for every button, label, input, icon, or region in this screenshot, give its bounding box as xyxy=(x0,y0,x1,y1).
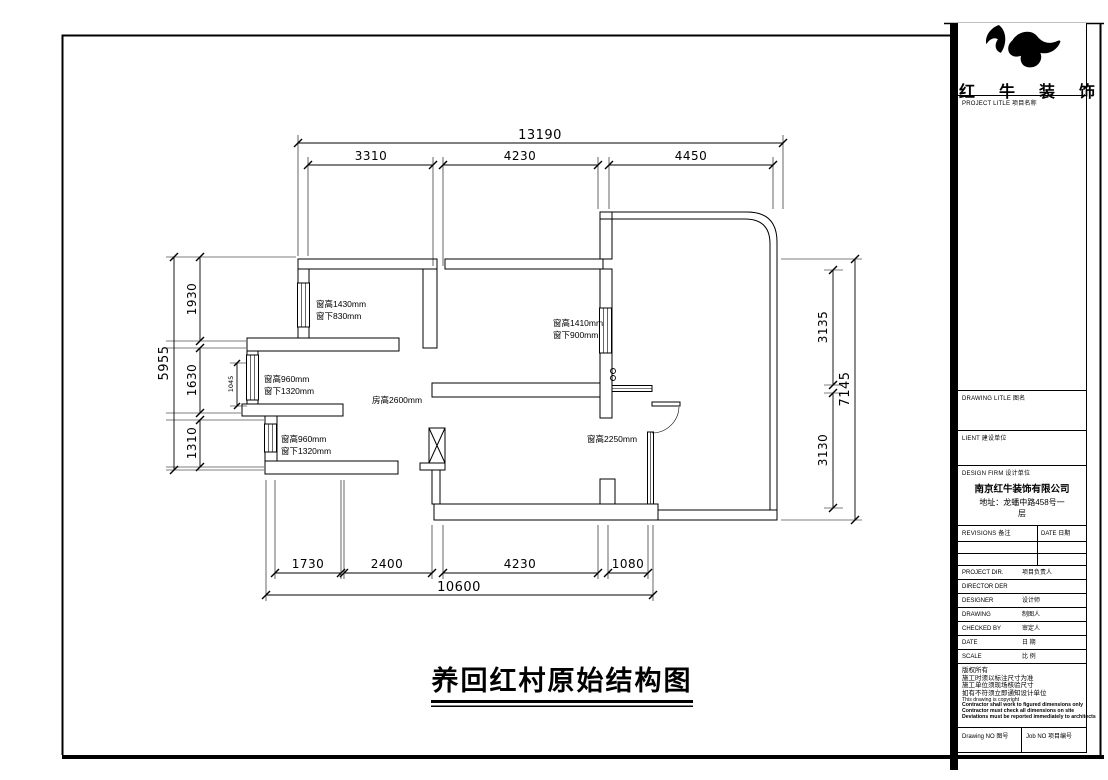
logo-section: 红牛装饰 xyxy=(958,23,1086,95)
row-date: DATE 日 期 xyxy=(958,636,1086,650)
project-title-header: PROJECT LITLE 项目名称 xyxy=(958,96,1086,107)
drawing-title-header: DRAWING LITLE 图名 xyxy=(958,391,1086,402)
annotation-window-topleft: 窗下830mm xyxy=(316,311,361,321)
row-value: 审定人 xyxy=(1022,622,1040,636)
row-value: 比 例 xyxy=(1022,650,1036,664)
job-no-label: Job NO 项目编号 xyxy=(1022,728,1086,740)
column-symbol xyxy=(429,428,445,463)
row-value: 日 期 xyxy=(1022,636,1036,650)
bull-logo-icon xyxy=(982,25,1062,75)
title-underline-thin xyxy=(431,706,693,708)
job-no-cell: Job NO 项目编号 xyxy=(1022,728,1086,752)
dim-left-inner: 1045 xyxy=(227,376,235,393)
revisions-section: REVISIONS 备注 DATE 日期 xyxy=(958,525,1086,565)
annotation-window-right: 窗下900mm xyxy=(553,330,598,340)
title-block: 红牛装饰 PROJECT LITLE 项目名称 DRAWING LITLE 图名… xyxy=(958,23,1087,753)
revisions-column-divider xyxy=(1037,526,1038,565)
row-value: 制图人 xyxy=(1022,608,1040,622)
design-firm-header: DESIGN FIRM 设计单位 xyxy=(958,466,1086,477)
note-line: 如有不符须立即通知设计单位 xyxy=(962,690,1086,698)
dimension-lines xyxy=(174,143,855,595)
row-project-dir: PROJECT DIR. 项目负责人 xyxy=(958,566,1086,580)
row-designer: DESIGNER 设计师 xyxy=(958,594,1086,608)
row-label: DRAWING xyxy=(962,608,991,622)
row-label: DATE xyxy=(962,636,978,650)
dim-left-total: 5955 xyxy=(157,345,172,380)
drawing-title-section: DRAWING LITLE 图名 xyxy=(958,390,1086,430)
plan-annotations: 窗高1430mm 窗下830mm 窗高1410mm 窗下900mm 窗高960m… xyxy=(264,299,637,456)
dim-top-seg2: 4230 xyxy=(504,149,537,163)
annotation-window-topleft: 窗高1430mm xyxy=(316,299,366,309)
note-disclaimer: Deviations must be reported immediately … xyxy=(962,715,1086,721)
firm-name: 南京红牛装饰有限公司 xyxy=(958,481,1086,495)
window-corridor xyxy=(612,386,652,392)
row-label: DIRECTOR DER xyxy=(962,580,1008,594)
dim-bottom-seg2: 2400 xyxy=(371,557,404,571)
annotation-window-balcony: 窗高2250mm xyxy=(587,434,637,444)
annotation-window-right: 窗高1410mm xyxy=(553,318,603,328)
dim-top-total: 13190 xyxy=(518,128,562,143)
numbers-section: Drawing NO 图号 Job NO 项目编号 xyxy=(958,727,1086,753)
dim-top-seg3: 4450 xyxy=(675,149,708,163)
window-bay-upper xyxy=(247,355,259,400)
row-label: SCALE xyxy=(962,650,982,664)
dim-right-seg2: 3130 xyxy=(816,434,830,467)
row-label: DESIGNER xyxy=(962,594,993,608)
drawing-title-group: 养回红村原始结构图 xyxy=(431,665,693,707)
personnel-rows: PROJECT DIR. 项目负责人 DIRECTOR DER DESIGNER… xyxy=(958,565,1086,663)
dim-left-seg1: 1930 xyxy=(185,283,199,316)
window-central xyxy=(600,308,612,353)
door-symbol xyxy=(611,369,681,434)
title-underline-thick xyxy=(431,700,693,703)
notes-section: 版权所有 施工时须以标注尺寸为准 施工单位须现场核验尺寸 如有不符须立即通知设计… xyxy=(958,663,1086,727)
dim-top-seg1: 3310 xyxy=(355,149,388,163)
dim-bottom-seg1: 1730 xyxy=(292,557,325,571)
window-bay-lower xyxy=(265,424,277,452)
drawing-no-cell: Drawing NO 图号 xyxy=(958,728,1022,752)
dimension-extension-lines xyxy=(166,135,862,601)
client-header: LIENT 建设单位 xyxy=(958,431,1086,442)
row-checked-by: CHECKED BY 审定人 xyxy=(958,622,1086,636)
row-drawing: DRAWING 制图人 xyxy=(958,608,1086,622)
annotation-window-bay-upper: 窗高960mm xyxy=(264,374,309,384)
note-line: 施工单位须现场核验尺寸 xyxy=(962,682,1086,690)
dim-bottom-total: 10600 xyxy=(437,580,481,595)
annotation-window-bay-lower: 窗高960mm xyxy=(281,434,326,444)
row-scale: SCALE 比 例 xyxy=(958,650,1086,664)
client-section: LIENT 建设单位 xyxy=(958,430,1086,465)
dimension-texts: 13190 3310 4230 4450 1730 2400 4230 1080… xyxy=(157,128,853,595)
dim-bottom-seg4: 1080 xyxy=(612,557,645,571)
dim-left-seg3: 1310 xyxy=(185,427,199,460)
drawing-sheet: 13190 3310 4230 4450 1730 2400 4230 1080… xyxy=(0,0,1108,780)
dim-right-seg1: 3135 xyxy=(816,311,830,344)
window-topleft xyxy=(298,283,310,327)
title-block-divider-bar xyxy=(950,23,958,770)
drawing-title: 养回红村原始结构图 xyxy=(432,665,693,696)
dimension-ticks xyxy=(170,139,859,599)
dim-bottom-seg3: 4230 xyxy=(504,557,537,571)
annotation-window-bay-lower: 窗下1320mm xyxy=(281,446,331,456)
note-line: 版权所有 xyxy=(962,667,1086,675)
row-label: CHECKED BY xyxy=(962,622,1001,636)
floor-plan-drawing: 13190 3310 4230 4450 1730 2400 4230 1080… xyxy=(0,0,1108,780)
floor-plan-walls xyxy=(242,212,777,520)
row-value: 项目负责人 xyxy=(1022,566,1052,580)
row-label: PROJECT DIR. xyxy=(962,566,1004,580)
firm-address-line2: 层 xyxy=(958,508,1086,519)
design-firm-section: DESIGN FIRM 设计单位 南京红牛装饰有限公司 地址：龙蟠中路458号一… xyxy=(958,465,1086,525)
dim-right-total: 7145 xyxy=(838,371,853,406)
annotation-room-height: 房高2600mm xyxy=(372,395,422,405)
drawing-no-label: Drawing NO 图号 xyxy=(958,728,1021,740)
row-value: 设计师 xyxy=(1022,594,1040,608)
row-director: DIRECTOR DER xyxy=(958,580,1086,594)
project-title-section: PROJECT LITLE 项目名称 xyxy=(958,95,1086,390)
annotation-window-bay-upper: 窗下1320mm xyxy=(264,386,314,396)
dim-left-seg2: 1630 xyxy=(185,364,199,397)
firm-address-line1: 地址：龙蟠中路458号一 xyxy=(958,497,1086,508)
revisions-date-header: DATE 日期 xyxy=(1041,528,1070,537)
window-balcony xyxy=(648,432,654,504)
revisions-row-line xyxy=(958,553,1086,554)
revisions-row-line xyxy=(958,541,1086,542)
